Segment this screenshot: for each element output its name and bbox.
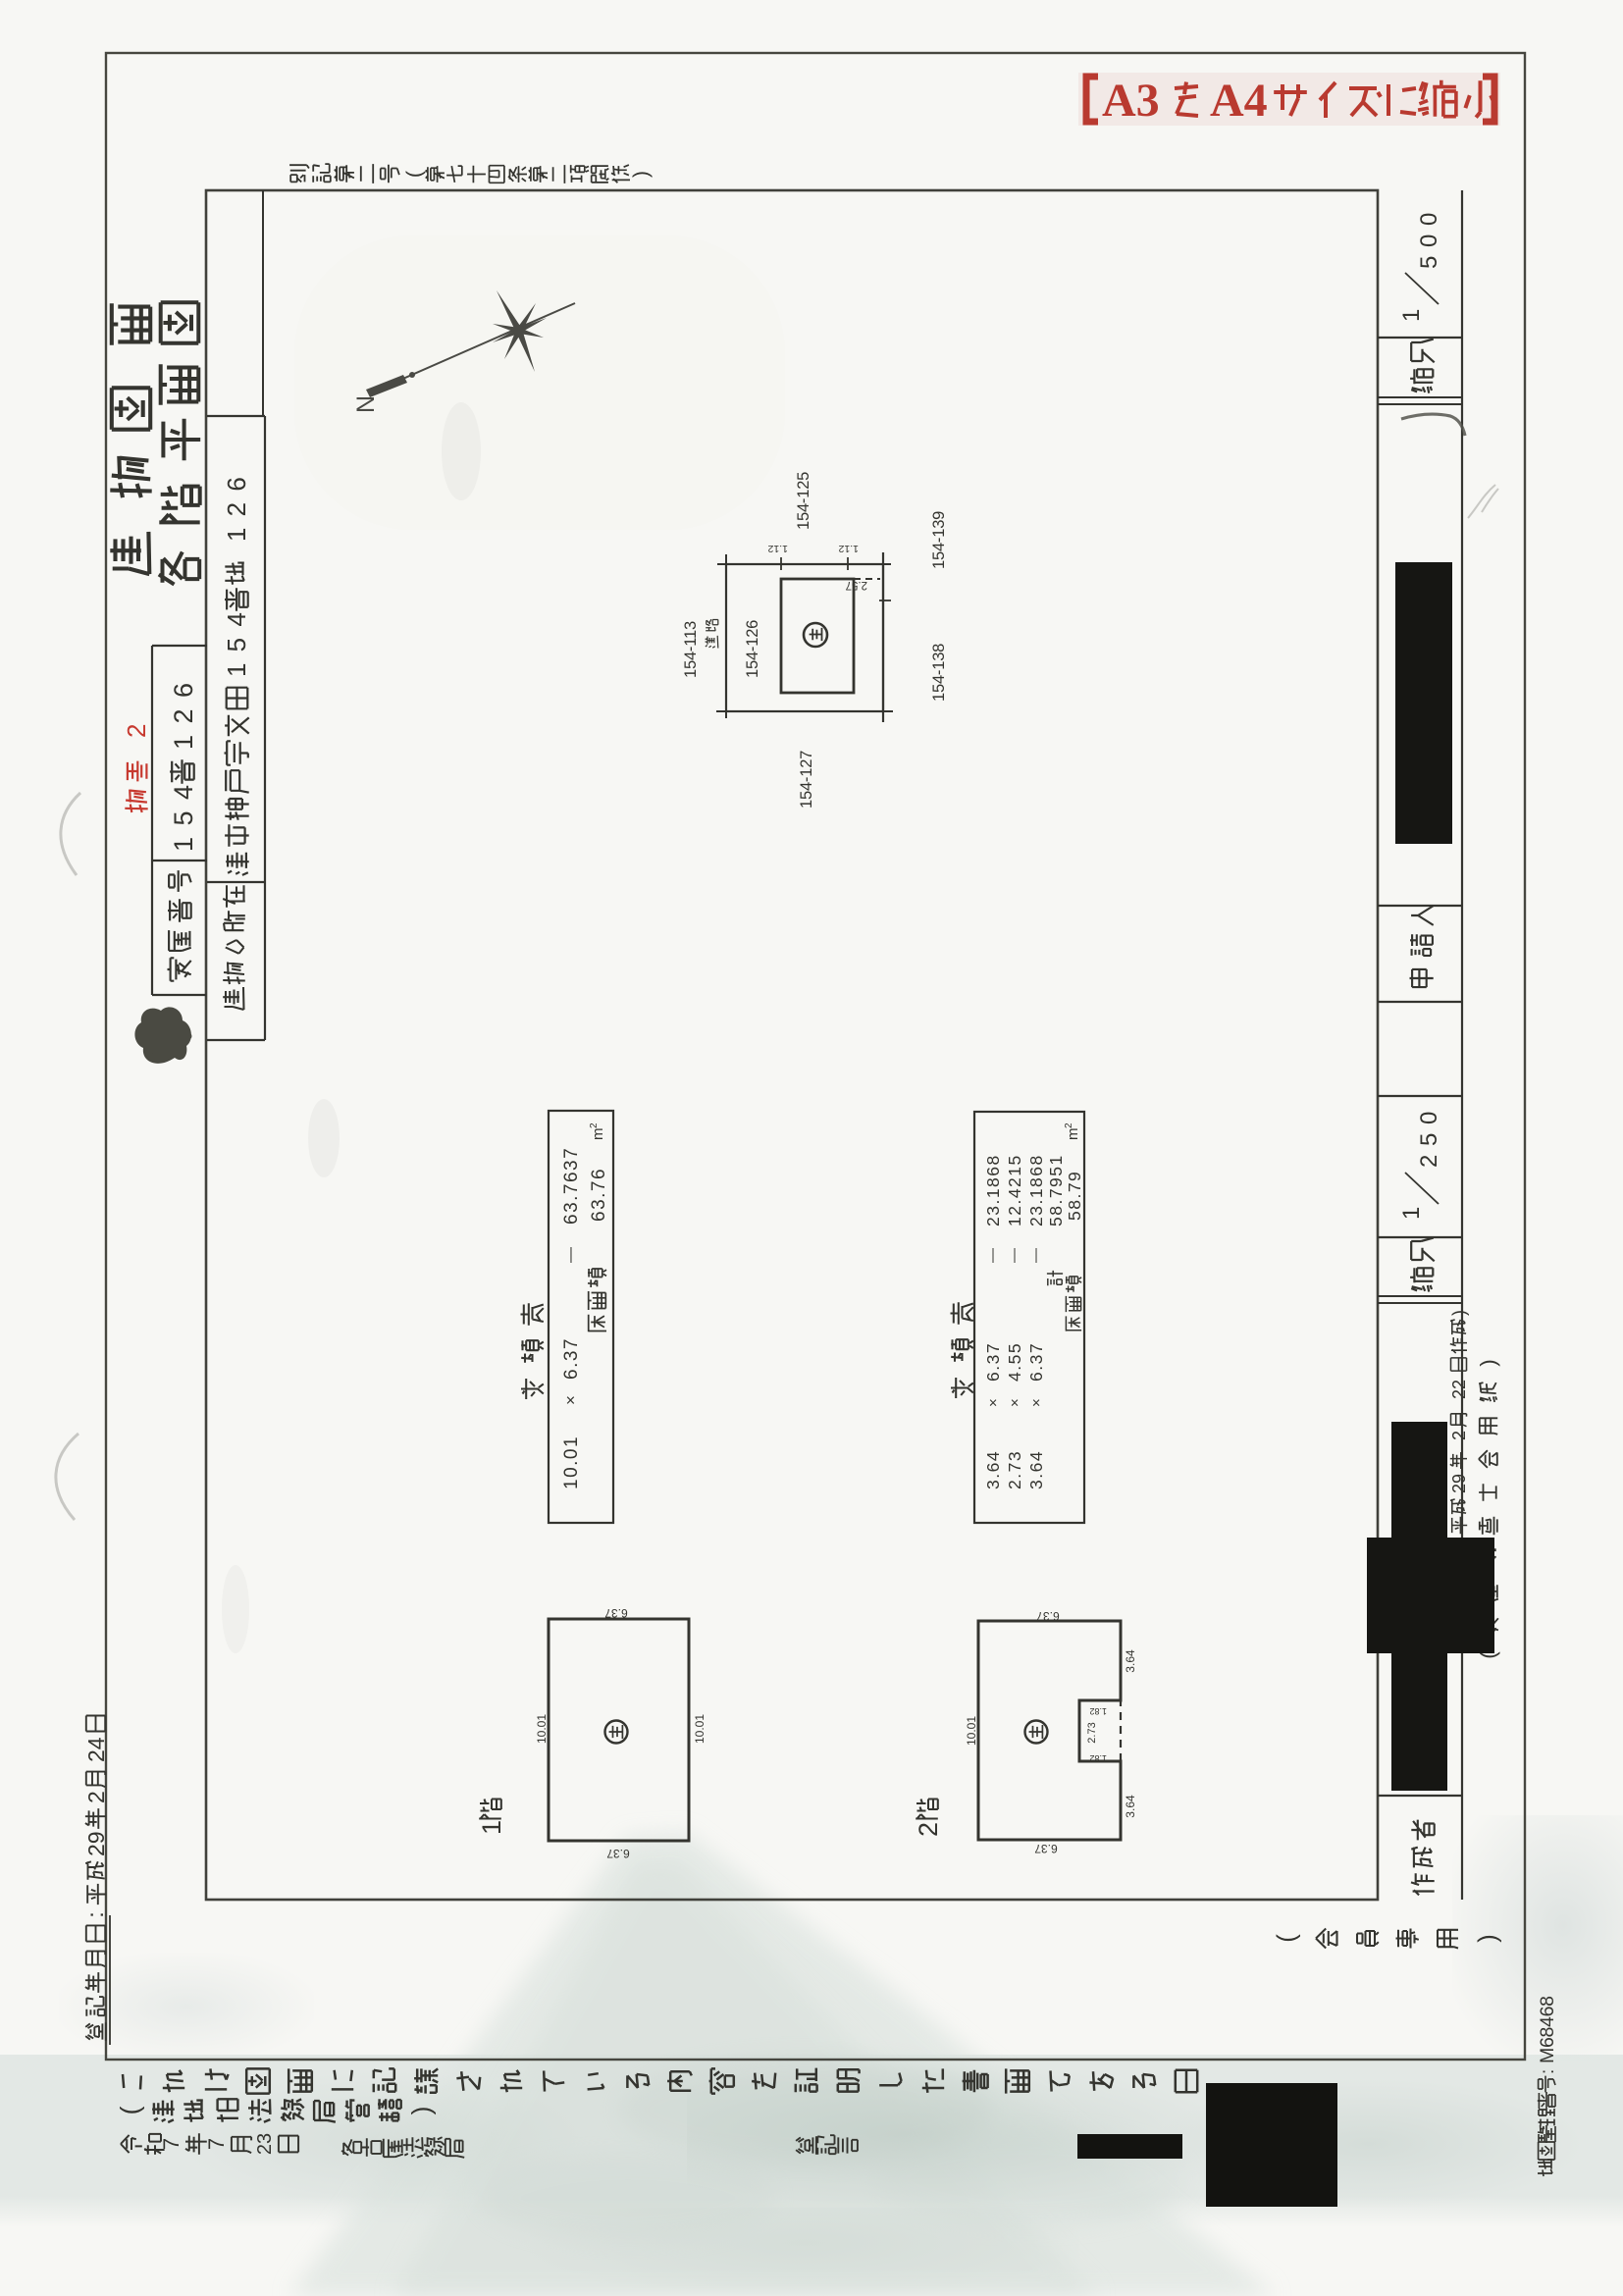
svg-text:23.1868: 23.1868 [1026, 1154, 1046, 1226]
svg-text:1 2 6: 1 2 6 [222, 475, 251, 542]
svg-text:10.01: 10.01 [965, 1716, 978, 1746]
svg-text:3.64: 3.64 [1124, 1795, 1137, 1818]
svg-text:10.01: 10.01 [535, 1714, 549, 1744]
svg-text:63.7637: 63.7637 [561, 1147, 582, 1225]
svg-text:): ) [1475, 1934, 1502, 1943]
svg-text:58.7951: 58.7951 [1046, 1154, 1066, 1226]
svg-text:2: 2 [83, 1791, 109, 1803]
svg-text:A4: A4 [1210, 75, 1268, 126]
svg-text:29: 29 [1449, 1474, 1469, 1493]
svg-text::: : [1538, 2069, 1558, 2074]
svg-text:×: × [561, 1395, 580, 1405]
svg-text:1.82: 1.82 [1089, 1706, 1107, 1716]
svg-text:—: — [1027, 1248, 1044, 1263]
svg-text:1 2 6: 1 2 6 [169, 681, 198, 750]
svg-text:2: 2 [122, 724, 151, 738]
svg-text:1.12: 1.12 [838, 543, 859, 554]
svg-text:12.4215: 12.4215 [1005, 1154, 1024, 1226]
svg-text:×: × [985, 1398, 1002, 1407]
svg-text:): ) [629, 171, 653, 178]
svg-text:): ) [1449, 1310, 1469, 1316]
svg-text:A3: A3 [1102, 75, 1160, 126]
svg-text:2.73: 2.73 [1005, 1450, 1024, 1489]
svg-text:2: 2 [914, 1822, 943, 1837]
svg-text:154-126: 154-126 [744, 620, 761, 678]
svg-text:(: ( [115, 2106, 144, 2114]
svg-text:1: 1 [1398, 1207, 1425, 1220]
svg-text:(: ( [402, 171, 426, 178]
svg-text:23.1868: 23.1868 [983, 1154, 1003, 1226]
svg-text:2: 2 [1449, 1431, 1469, 1440]
svg-text:): ) [1476, 1359, 1500, 1366]
svg-text:1: 1 [477, 1820, 506, 1835]
svg-text:4.55: 4.55 [1005, 1342, 1024, 1382]
svg-text:2 5 0: 2 5 0 [1416, 1111, 1442, 1168]
svg-text:7: 7 [204, 2138, 229, 2150]
svg-text:2.73: 2.73 [1086, 1722, 1098, 1743]
svg-text:23: 23 [254, 2133, 276, 2155]
svg-text:58.79: 58.79 [1065, 1171, 1084, 1221]
svg-text:m: m [590, 1128, 606, 1141]
svg-text:3.64: 3.64 [1026, 1450, 1046, 1489]
svg-text:5 0 0: 5 0 0 [1416, 212, 1442, 269]
svg-text:1: 1 [1398, 309, 1425, 322]
svg-text:6.37: 6.37 [561, 1337, 582, 1380]
svg-text:24: 24 [83, 1737, 109, 1762]
svg-text:1 5 4: 1 5 4 [169, 783, 198, 852]
svg-text:—: — [562, 1247, 579, 1263]
svg-text:6.37: 6.37 [604, 1606, 628, 1620]
svg-text:29: 29 [83, 1831, 109, 1856]
svg-text:2: 2 [589, 1122, 600, 1128]
svg-text:6.37: 6.37 [1034, 1842, 1058, 1855]
svg-text:154-125: 154-125 [795, 472, 812, 530]
svg-text:154-139: 154-139 [930, 511, 948, 569]
svg-text:m: m [1065, 1128, 1081, 1141]
svg-text:63.76: 63.76 [589, 1168, 609, 1222]
svg-text:(: ( [1274, 1934, 1301, 1943]
svg-text:7: 7 [159, 2138, 183, 2150]
svg-text:6.37: 6.37 [606, 1847, 630, 1860]
svg-text:22: 22 [1449, 1380, 1469, 1399]
svg-text:6.37: 6.37 [983, 1342, 1003, 1382]
svg-text:10.01: 10.01 [693, 1714, 707, 1744]
svg-text::: : [82, 1911, 108, 1918]
svg-text:3.64: 3.64 [983, 1450, 1003, 1489]
svg-text:1 5 4: 1 5 4 [222, 610, 251, 677]
svg-text:154-127: 154-127 [798, 751, 815, 809]
svg-text:): ) [406, 2107, 436, 2115]
svg-text:1.82: 1.82 [1089, 1753, 1107, 1763]
svg-text:10.01: 10.01 [561, 1435, 582, 1489]
svg-text:154-113: 154-113 [682, 621, 700, 678]
svg-text:×: × [1007, 1398, 1023, 1407]
svg-text:—: — [1006, 1248, 1022, 1263]
svg-text:6.37: 6.37 [1026, 1342, 1046, 1382]
svg-text:3.64: 3.64 [1124, 1649, 1137, 1673]
svg-text:154-138: 154-138 [930, 644, 948, 702]
svg-text:6.37: 6.37 [1036, 1609, 1060, 1623]
svg-text:1.12: 1.12 [767, 543, 788, 554]
svg-text:×: × [1028, 1398, 1045, 1407]
svg-text:2.57: 2.57 [846, 579, 867, 591]
svg-text:M68468: M68468 [1537, 1996, 1558, 2063]
svg-text:—: — [984, 1248, 1001, 1263]
svg-text:2: 2 [1064, 1122, 1074, 1128]
